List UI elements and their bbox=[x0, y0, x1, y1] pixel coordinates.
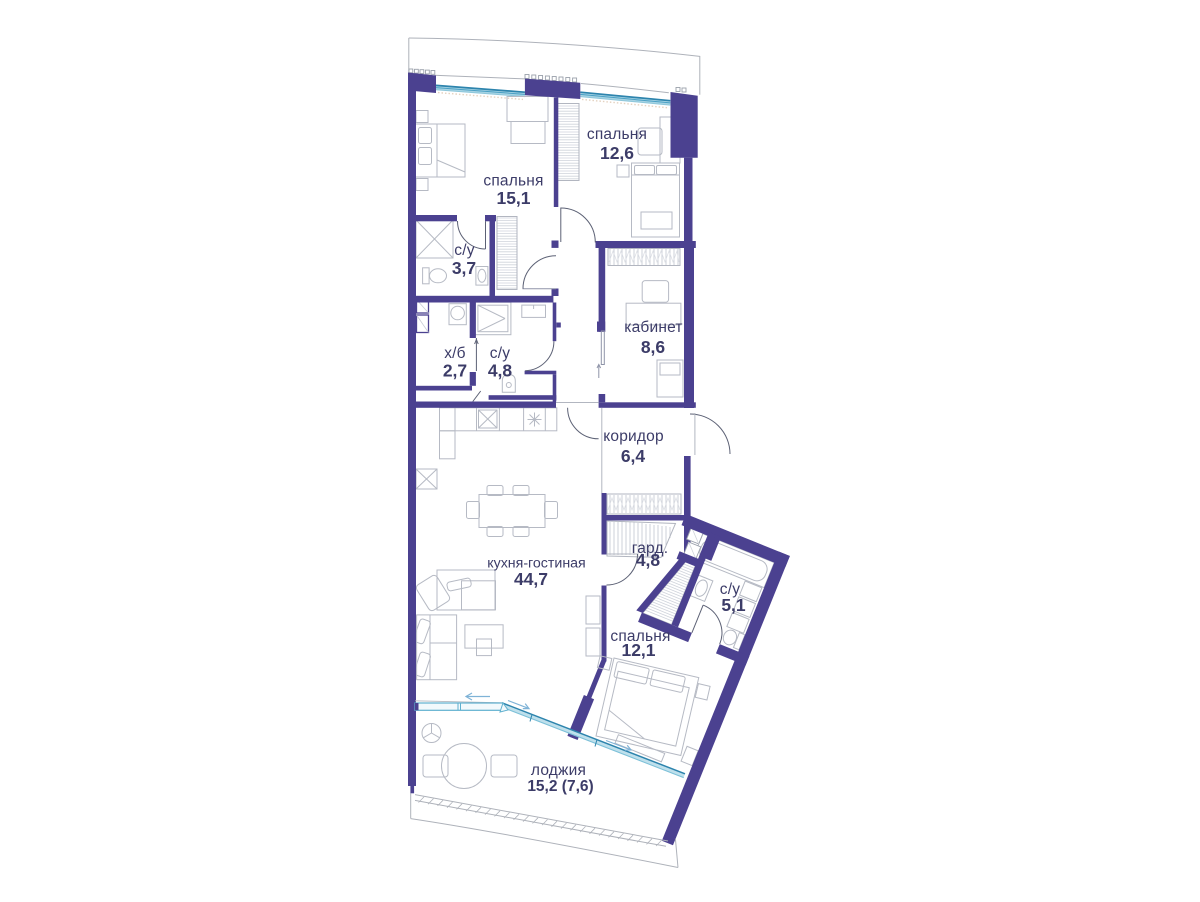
svg-text:4,8: 4,8 bbox=[636, 550, 661, 570]
svg-text:спальня: спальня bbox=[587, 126, 647, 143]
svg-text:кабинет: кабинет bbox=[624, 319, 682, 336]
svg-text:с/у: с/у bbox=[490, 345, 510, 362]
svg-text:4,8: 4,8 bbox=[488, 361, 513, 381]
svg-text:12,6: 12,6 bbox=[600, 143, 634, 163]
svg-text:спальня: спальня bbox=[483, 173, 543, 190]
svg-text:5,1: 5,1 bbox=[721, 595, 746, 615]
svg-text:6,4: 6,4 bbox=[621, 446, 646, 466]
svg-text:с/у: с/у bbox=[454, 242, 474, 259]
svg-text:3,7: 3,7 bbox=[452, 258, 476, 278]
svg-text:коридор: коридор bbox=[603, 428, 664, 445]
svg-text:12,1: 12,1 bbox=[621, 640, 655, 660]
svg-text:15,2 (7,6): 15,2 (7,6) bbox=[527, 778, 593, 795]
svg-text:2,7: 2,7 bbox=[443, 361, 467, 381]
svg-text:15,1: 15,1 bbox=[496, 188, 530, 208]
svg-text:8,6: 8,6 bbox=[641, 337, 666, 357]
svg-text:44,7: 44,7 bbox=[514, 569, 548, 589]
svg-text:лоджия: лоджия bbox=[531, 762, 586, 779]
svg-text:х/б: х/б bbox=[444, 345, 466, 362]
